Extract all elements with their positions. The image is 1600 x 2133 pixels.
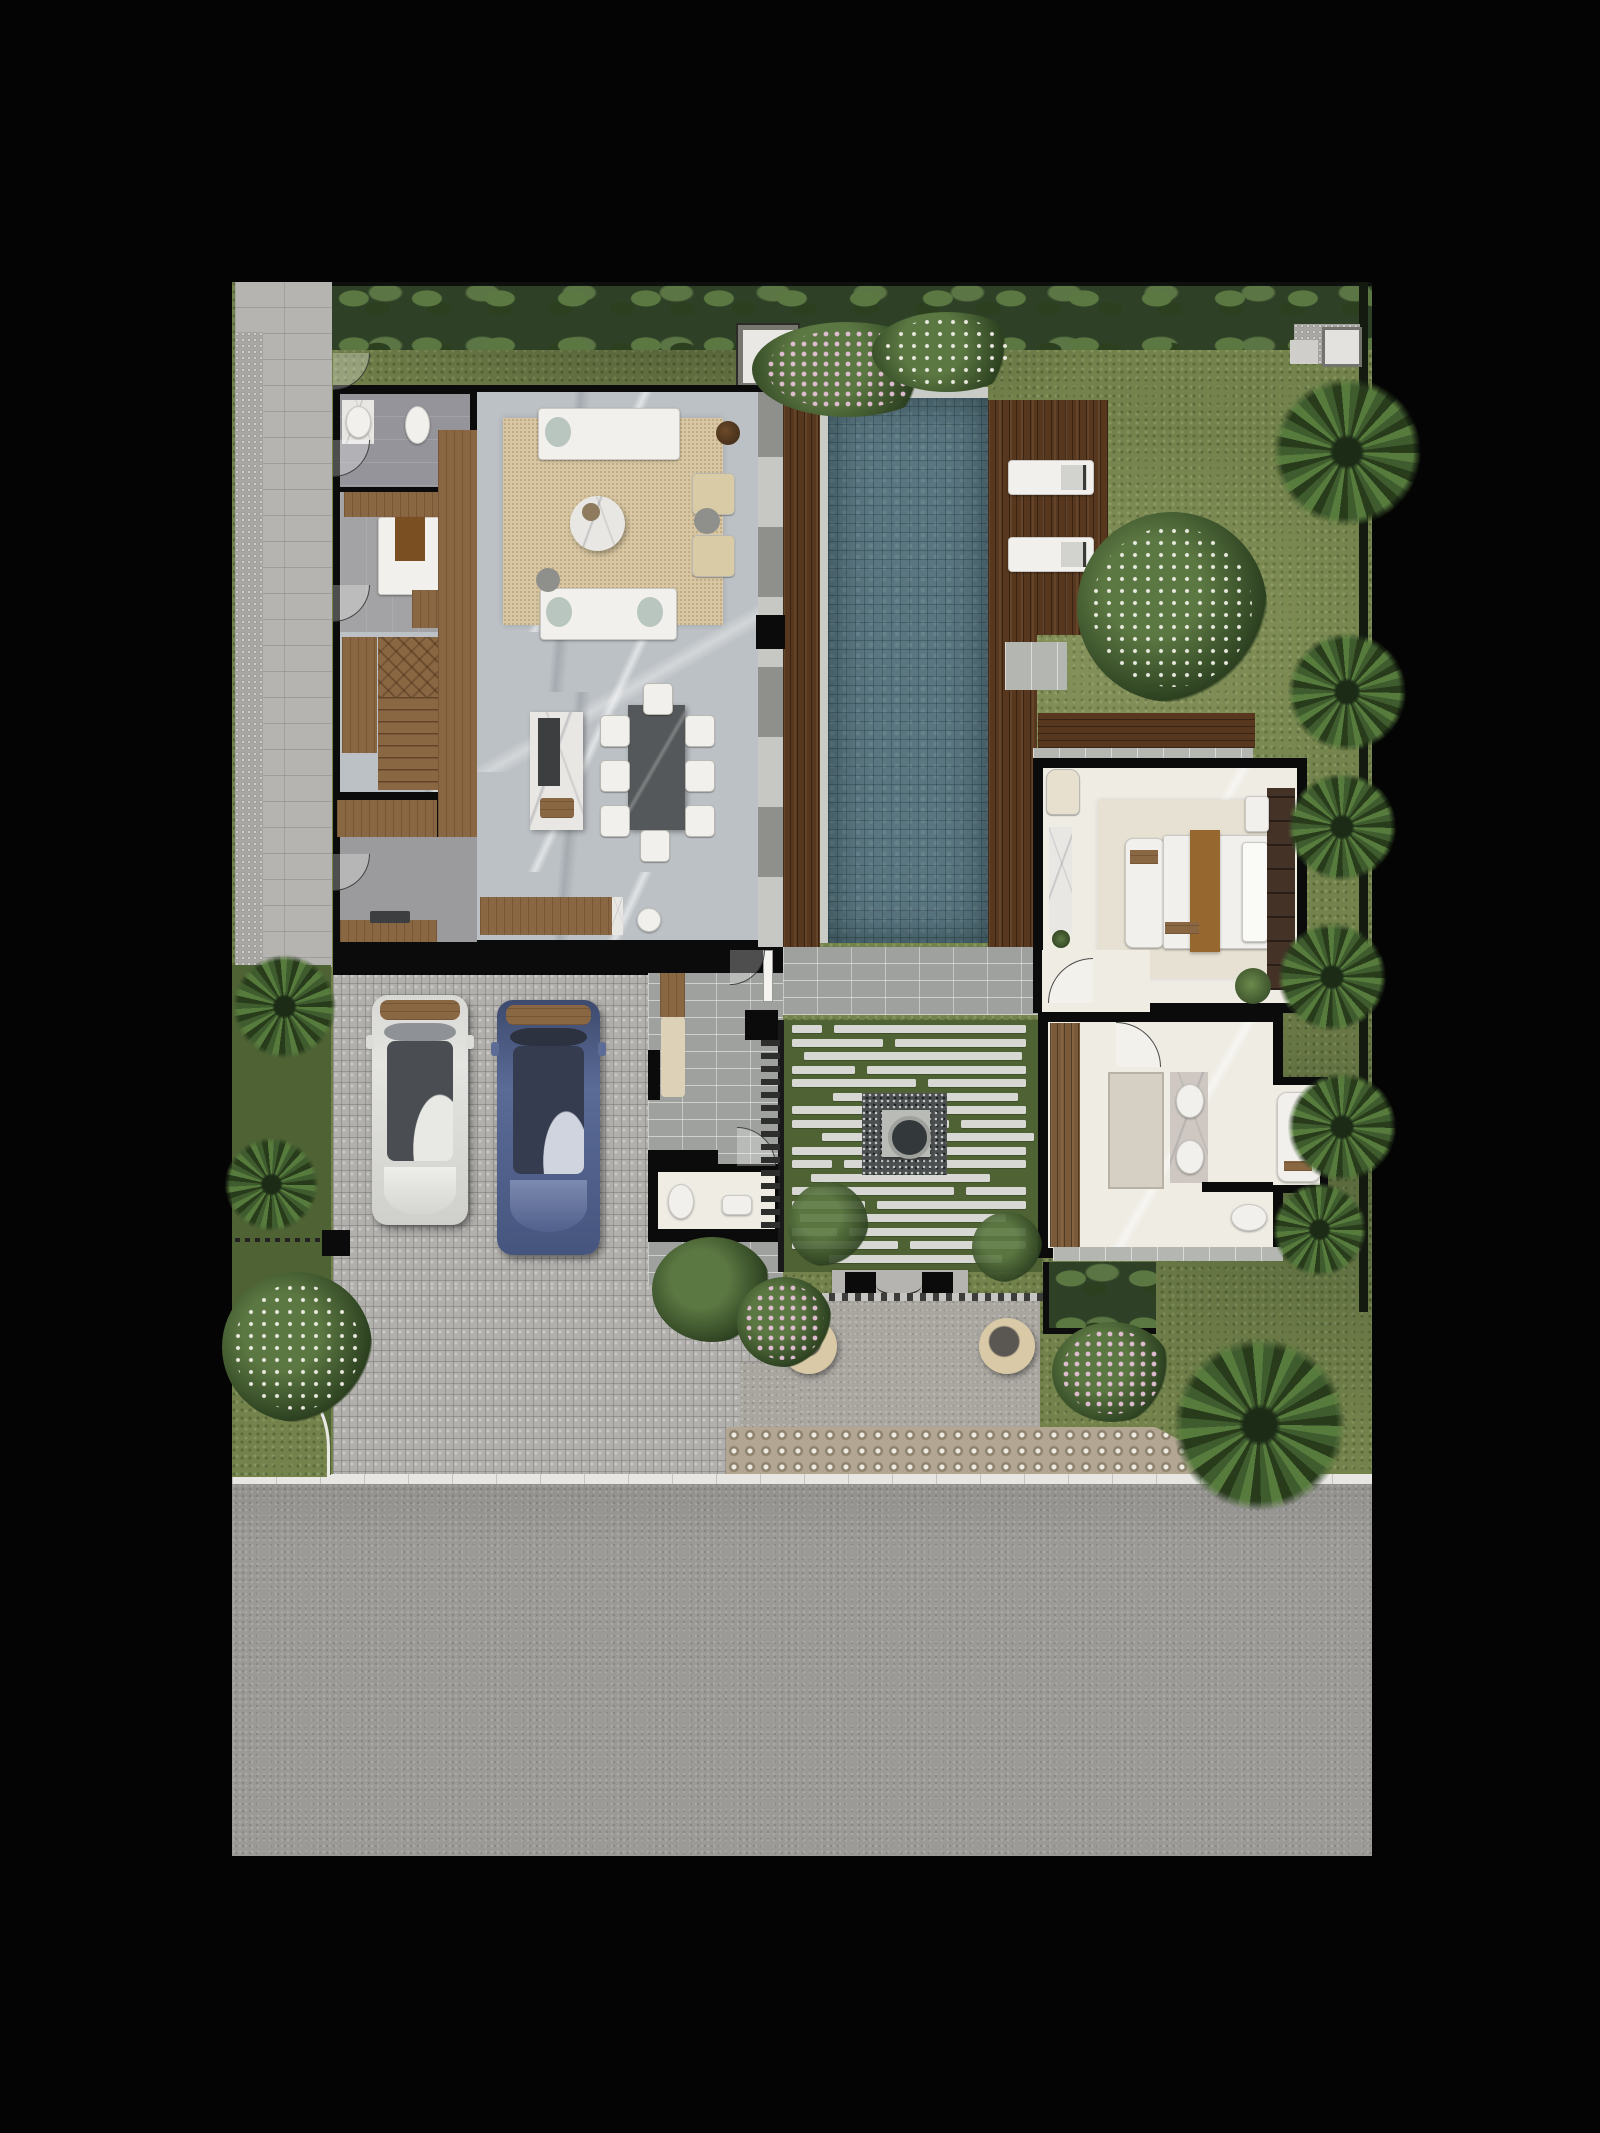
louver-slat [761, 1118, 780, 1124]
bedroom-armchair [1046, 769, 1080, 815]
louver-slat [761, 1209, 780, 1215]
louver-slat [761, 1170, 780, 1176]
courtyard-stripe [792, 1160, 832, 1168]
vanity-sink-a [1176, 1084, 1204, 1118]
car-blue-roof-rack [506, 1005, 591, 1025]
scullery-upper-cabinets [337, 800, 437, 837]
dining-chair-5 [685, 760, 715, 792]
courtyard-stripe [834, 1025, 1026, 1033]
street-road [232, 1484, 1372, 1856]
nightstand [1245, 796, 1269, 832]
palm-se-corner [1172, 1337, 1347, 1512]
entry-east-pink-bush [1052, 1322, 1172, 1422]
coffee-table-bowl [582, 503, 600, 521]
palm-east-a [1287, 632, 1407, 752]
louver-slat [761, 1092, 780, 1098]
palm-east-e [1272, 1182, 1367, 1277]
powder1-sink [346, 406, 371, 438]
coffee-table [570, 496, 625, 551]
louver-slat [761, 1105, 780, 1111]
armchair-b [692, 535, 735, 577]
palm-east-c [1277, 922, 1387, 1032]
vanity-sink-b [1176, 1140, 1204, 1174]
courtyard-stripe [966, 1187, 1026, 1195]
sofa-south [540, 588, 677, 640]
palm-west-b [224, 1137, 319, 1232]
entry-urn-right [979, 1318, 1035, 1374]
bedroom-plant-large [1235, 968, 1271, 1004]
east-door-track [758, 392, 783, 947]
courtyard-stripe [804, 1052, 1022, 1060]
louver-slat [761, 1131, 780, 1137]
sun-lounger-1 [1008, 460, 1094, 495]
dining-chair-2 [600, 760, 630, 792]
bedroom-console [1049, 827, 1072, 933]
sofa-pillow-b [637, 597, 663, 627]
entry-step-strip [790, 1293, 1043, 1301]
maid-bed-blanket [395, 517, 425, 561]
car-white-hood [384, 1167, 456, 1215]
west-path-pebble-border [235, 332, 263, 967]
north-boundary-wall [332, 282, 1372, 286]
garden-step-pad [1005, 642, 1067, 690]
car-white-mirror-left [366, 1035, 374, 1049]
bathroom-wood-strip [1050, 1023, 1080, 1247]
foyer-wardrobe-band [438, 430, 477, 838]
scullery-cooktop [370, 911, 410, 923]
courtyard-stripe [867, 1066, 1026, 1074]
stair-landing [378, 637, 438, 697]
louver-slat [761, 1040, 780, 1046]
armchair-side-table [694, 508, 720, 534]
palm-east-d [1287, 1072, 1397, 1182]
palm-west-a [232, 954, 337, 1059]
palm-east-b [1287, 772, 1397, 882]
bed-pillows [1242, 842, 1268, 942]
sun-lounger-2 [1008, 537, 1094, 572]
sofa-north [538, 408, 680, 460]
palm-cluster-ne [1272, 377, 1422, 527]
car-blue-glass-roof [513, 1046, 584, 1174]
courtyard-fern-b [972, 1212, 1042, 1282]
planter-pot [716, 421, 740, 445]
entry-plaza-west [740, 1362, 800, 1428]
car-blue [497, 1000, 600, 1255]
dining-chair-3 [600, 805, 630, 837]
sideboard-end [612, 897, 623, 935]
bathroom-rug [1108, 1072, 1164, 1189]
car-white [372, 995, 468, 1225]
courtyard-stripe [877, 1201, 1026, 1209]
courtyard-fern-a [788, 1182, 868, 1267]
dining-chair-4 [685, 715, 715, 747]
maid-nightstand [412, 590, 438, 628]
sofa-pillow [545, 417, 571, 447]
dining-chair-1 [600, 715, 630, 747]
louver-slat [761, 1144, 780, 1150]
bedroom-plant-small [1052, 930, 1070, 948]
fire-pit-bowl [888, 1116, 931, 1159]
walkway-bench-cushion [661, 1017, 685, 1097]
louver-slat [761, 1183, 780, 1189]
pool-west-deck [783, 385, 820, 947]
bathroom-toilet [1231, 1204, 1267, 1231]
drive-gate-post [322, 1230, 350, 1256]
villa-site-plan [232, 282, 1372, 1856]
car-white-windshield [384, 1023, 456, 1041]
car-white-glass-roof [387, 1041, 453, 1161]
car-white-roof-rack [380, 1000, 460, 1020]
powder1-toilet [405, 406, 430, 444]
louver-slat [761, 1053, 780, 1059]
car-white-mirror-right [466, 1035, 474, 1049]
louver-slat [761, 1066, 780, 1072]
wc-partition [1202, 1182, 1273, 1192]
armchair-a [692, 473, 735, 515]
drive-fence [235, 1238, 323, 1242]
dining-chair-7 [643, 683, 673, 715]
scullery-counter [340, 920, 437, 942]
walkway-wall-seg-a [648, 1050, 660, 1100]
utility-step [1290, 340, 1318, 364]
courtyard-stripe [792, 1039, 883, 1047]
louver-slat [761, 1196, 780, 1202]
sun-lounger-slot [1083, 542, 1086, 567]
gate-west-blossom [737, 1277, 832, 1367]
bathroom-terrace-band [1053, 1247, 1283, 1261]
courtyard-stripe [792, 1025, 822, 1033]
car-blue-hood [510, 1180, 587, 1232]
dining-chair-6 [685, 805, 715, 837]
dining-table [628, 705, 685, 830]
pool-water [828, 398, 988, 943]
street-breeze-paver-band [726, 1427, 1243, 1474]
north-flower-shrubs [872, 312, 1022, 392]
utility-unit [1322, 327, 1362, 367]
car-blue-mirror-right [598, 1042, 606, 1056]
kitchen-stool [637, 908, 661, 932]
kitchen-rear-door-leaf [763, 950, 773, 1002]
floor-plan-canvas [0, 0, 1600, 2133]
east-door-jamb [756, 615, 785, 649]
louver-slat [761, 1157, 780, 1163]
bedroom-north-deck [1038, 713, 1255, 748]
chaise-tray [1130, 850, 1158, 864]
sofa-pillow-a [546, 597, 572, 627]
bed-foot-tray [1165, 922, 1199, 934]
courtyard-stripe [928, 1079, 1026, 1087]
car-blue-windshield [510, 1028, 587, 1046]
car-blue-mirror-left [491, 1042, 499, 1056]
courtyard-stripe [895, 1039, 1026, 1047]
sofa-side-table [536, 568, 560, 592]
dining-chair-8 [640, 830, 670, 862]
frangipani-west [222, 1272, 372, 1422]
louver-slat [761, 1079, 780, 1085]
courtyard-stripe [792, 1079, 916, 1087]
powder2-sink [722, 1195, 752, 1215]
kitchen-sideboard [480, 897, 612, 935]
pool-south-walkway [783, 947, 1042, 1015]
island-tray [540, 798, 574, 818]
sun-lounger-slot [1083, 465, 1086, 490]
island-cooktop [538, 718, 560, 786]
powder2-toilet [668, 1184, 694, 1219]
courtyard-stripe [792, 1066, 855, 1074]
frangipani-tree-east [1077, 512, 1267, 702]
walkway-pillar [745, 1010, 778, 1040]
courtyard-stripe [961, 1120, 1026, 1128]
louver-slat [761, 1222, 780, 1228]
foyer-closet [342, 637, 377, 753]
